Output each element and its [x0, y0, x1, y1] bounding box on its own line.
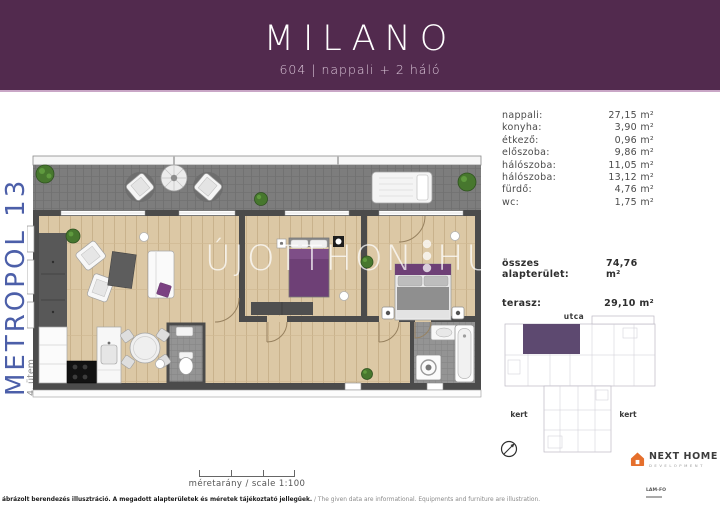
room-label: nappali: — [502, 110, 543, 122]
terrace-label: terasz: — [502, 298, 541, 309]
room-row: étkező:0,96 m² — [502, 135, 654, 147]
room-value: 11,05 m² — [608, 160, 654, 172]
page-subtitle: 604 | nappali + 2 háló — [0, 62, 720, 77]
room-label: konyha: — [502, 122, 542, 134]
compass-icon — [502, 442, 517, 457]
room-value: 4,76 m² — [615, 184, 654, 196]
garden-right-label: kert — [619, 410, 637, 419]
room-label: wc: — [502, 197, 519, 209]
terrace-row: terasz:29,10 m² — [502, 298, 654, 309]
brochure-page: MILANO 604 | nappali + 2 háló METROPOL 1… — [0, 0, 720, 510]
scale-label: méretarány / scale 1:100 — [182, 479, 312, 489]
street-label: utca — [564, 312, 584, 321]
svg-text:ÚJOTTHON: ÚJOTTHON — [205, 237, 415, 279]
room-value: 1,75 m² — [615, 197, 654, 209]
stove-icon — [67, 361, 97, 383]
room-label: előszoba: — [502, 147, 550, 159]
toilet-icon — [179, 358, 193, 375]
room-value: 3,90 m² — [615, 122, 654, 134]
floor-plan: ÚJOTTHON HU — [27, 152, 501, 404]
room-row: nappali:27,15 m² — [502, 110, 654, 122]
total-area-label: összes alapterület: — [502, 258, 606, 280]
header-banner: MILANO 604 | nappali + 2 háló — [0, 0, 720, 92]
scale-bar — [199, 470, 295, 477]
disclaimer-hu: ábrázolt berendezés illusztráció. A mega… — [2, 497, 312, 503]
sun-lounger — [372, 172, 432, 203]
garden-left-label: kert — [510, 410, 528, 419]
room-label: hálószoba: — [502, 172, 556, 184]
house-icon — [630, 451, 645, 467]
total-area-value: 74,76 m² — [606, 258, 654, 280]
room-row: előszoba:9,86 m² — [502, 147, 654, 159]
room-value: 0,96 m² — [615, 135, 654, 147]
brand-subtitle: DEVELOPMENT — [649, 463, 718, 468]
room-row: wc:1,75 m² — [502, 197, 654, 209]
room-row: hálószoba:11,05 m² — [502, 160, 654, 172]
room-row: konyha:3,90 m² — [502, 122, 654, 134]
site-plan-drawing: utca kert kert — [498, 310, 673, 462]
brand-name: NEXT HOME — [649, 451, 718, 462]
room-label: hálószoba: — [502, 160, 556, 172]
disclaimer: ábrázolt berendezés illusztráció. A mega… — [2, 497, 502, 503]
watermark: ÚJOTTHON HU — [205, 237, 495, 279]
total-area-row: összes alapterület:74,76 m² — [502, 258, 654, 280]
room-row: hálószoba:13,12 m² — [502, 172, 654, 184]
developer-logo: NEXT HOME DEVELOPMENT — [630, 451, 718, 468]
floor-plan-drawing: ÚJOTTHON HU — [27, 152, 501, 404]
room-row: fürdő:4,76 m² — [502, 184, 654, 196]
room-value: 27,15 m² — [608, 110, 654, 122]
partner-logo: LAM-FO — [646, 488, 666, 493]
disclaimer-en: / The given data are informational. Equi… — [312, 497, 540, 503]
room-label: étkező: — [502, 135, 539, 147]
room-label: fürdő: — [502, 184, 532, 196]
page-title: MILANO — [0, 19, 720, 59]
room-value: 9,86 m² — [615, 147, 654, 159]
svg-text:HU: HU — [437, 239, 495, 279]
room-list: nappali:27,15 m² konyha:3,90 m² étkező:0… — [502, 110, 654, 209]
terrace-value: 29,10 m² — [604, 298, 654, 309]
partner-logo-line — [646, 496, 662, 498]
room-value: 13,12 m² — [608, 172, 654, 184]
left-facade-frames — [27, 226, 34, 328]
site-plan: utca kert kert — [498, 310, 673, 462]
kitchen-sink-icon — [101, 345, 117, 364]
highlighted-unit — [523, 324, 580, 354]
dining-table-icon — [130, 333, 160, 363]
area-totals: összes alapterület:74,76 m² terasz:29,10… — [502, 258, 654, 309]
